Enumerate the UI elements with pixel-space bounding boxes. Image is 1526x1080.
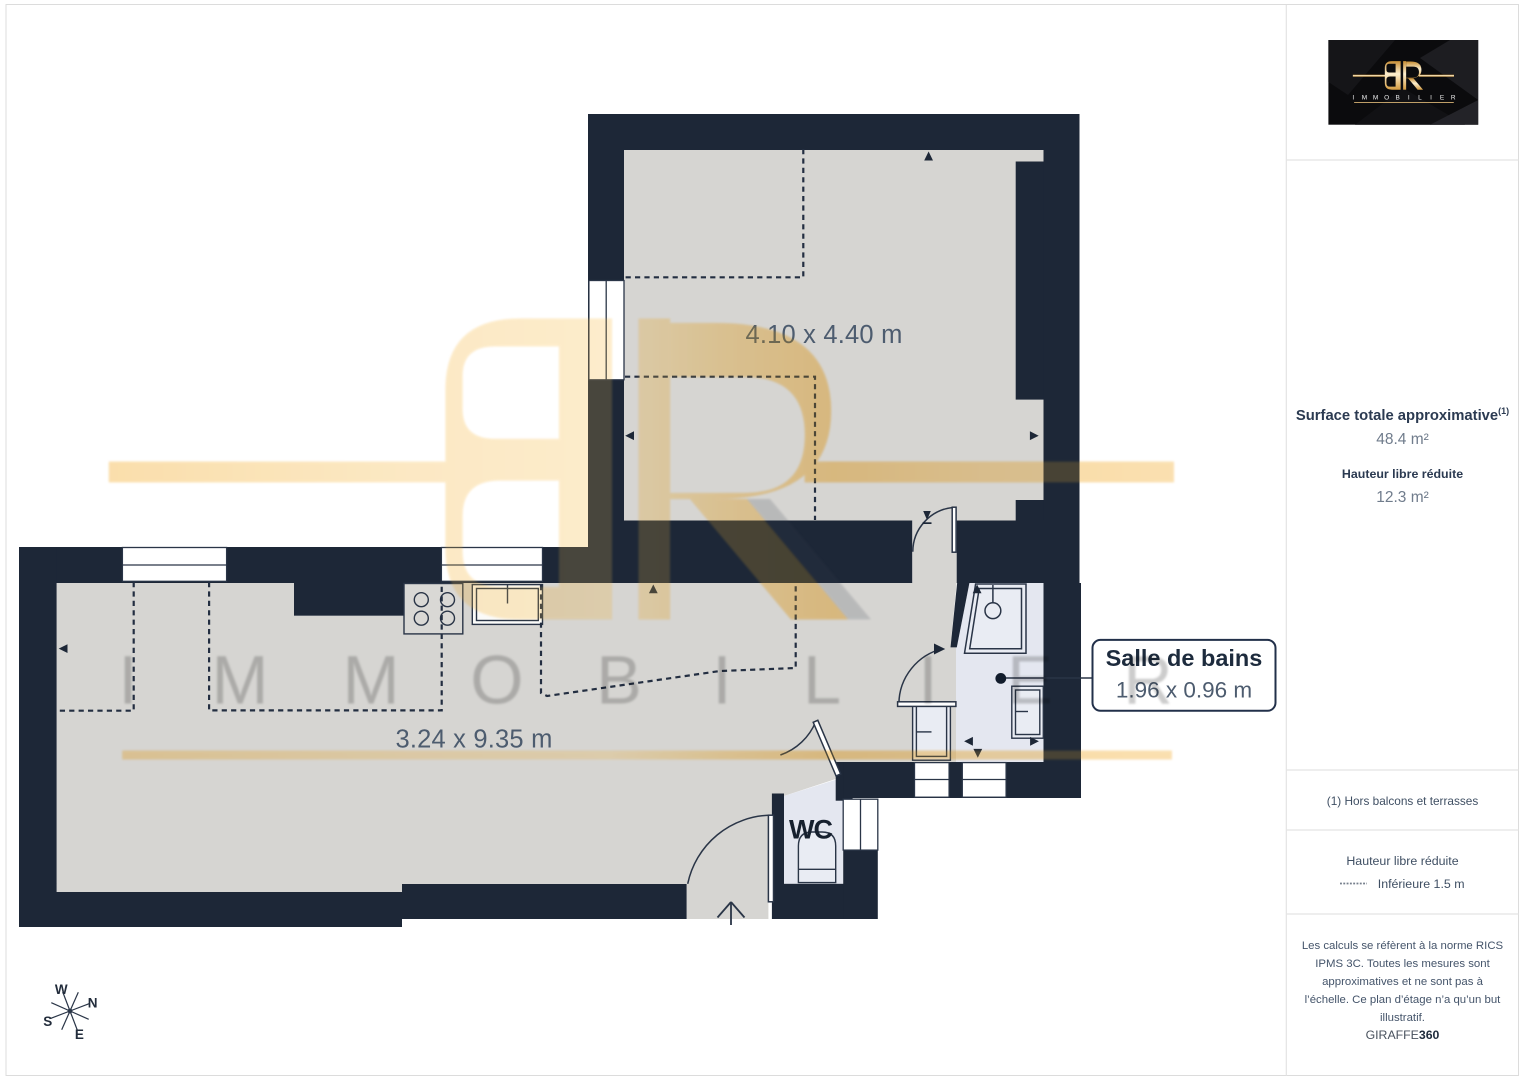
- svg-text:M: M: [1373, 95, 1378, 102]
- svg-text:E: E: [75, 1027, 84, 1042]
- svg-text:N: N: [88, 996, 98, 1011]
- svg-text:I: I: [1430, 95, 1432, 102]
- svg-text:S: S: [43, 1014, 52, 1029]
- svg-text:W: W: [55, 982, 68, 997]
- svg-text:B: B: [1396, 95, 1400, 102]
- svg-text:R: R: [1451, 95, 1456, 102]
- svg-text:WC: WC: [789, 815, 832, 845]
- svg-text:I: I: [1352, 95, 1354, 102]
- svg-text:L: L: [1418, 95, 1422, 102]
- svg-text:3.24 x 9.35 m: 3.24 x 9.35 m: [395, 726, 552, 754]
- svg-text:O: O: [1384, 95, 1389, 102]
- svg-text:M: M: [1362, 95, 1367, 102]
- svg-text:I: I: [1408, 95, 1410, 102]
- svg-text:E: E: [1440, 95, 1445, 102]
